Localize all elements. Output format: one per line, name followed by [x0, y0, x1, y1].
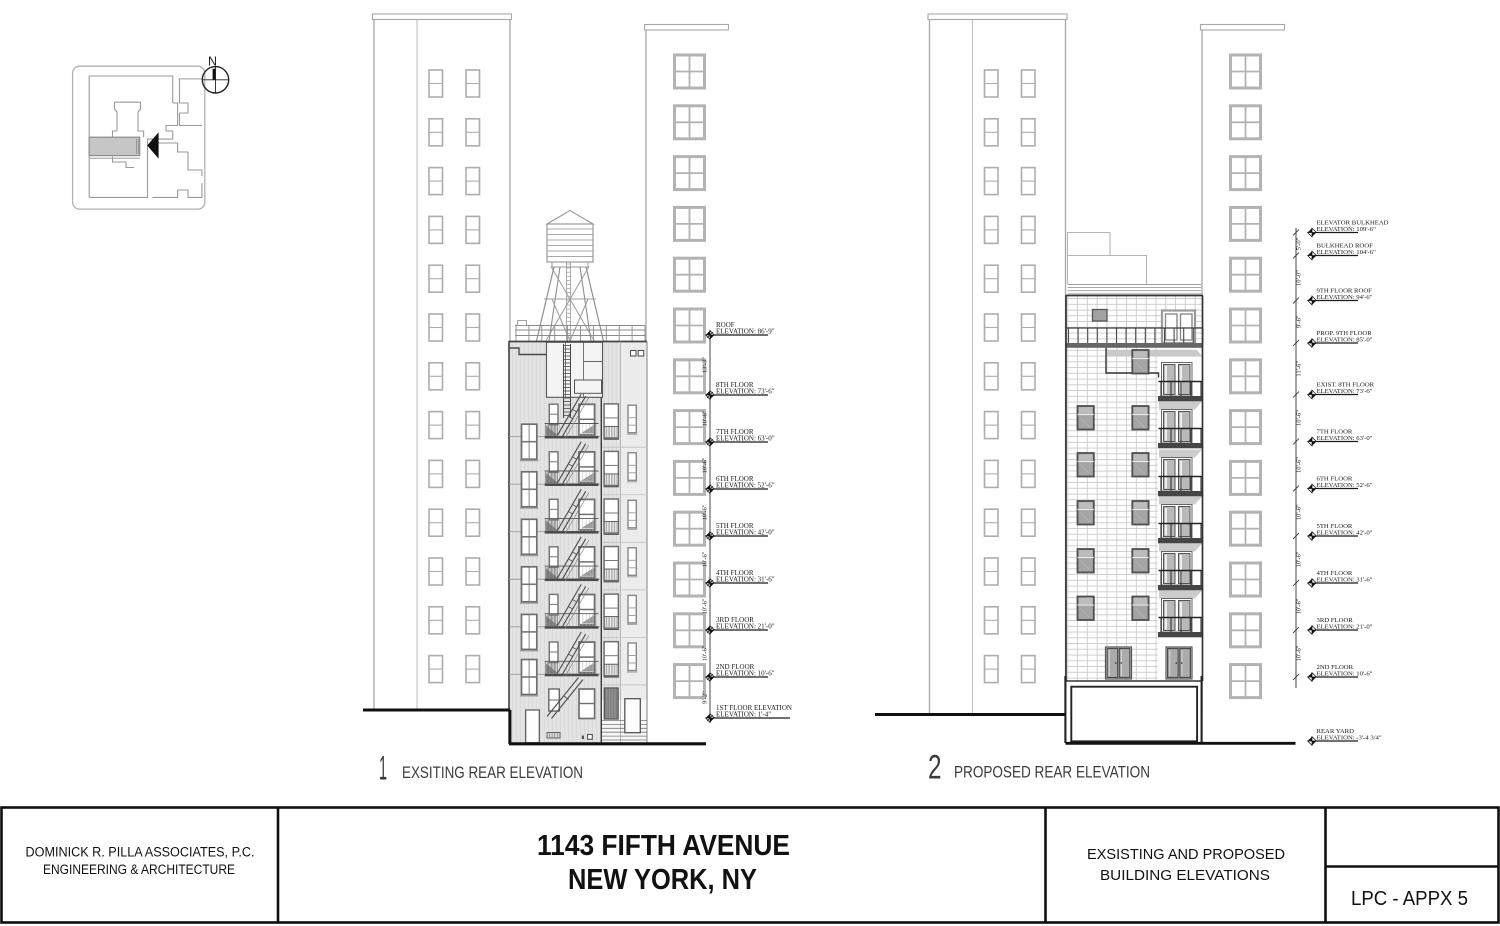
svg-text:10'-6": 10'-6" [702, 645, 709, 661]
svg-text:9'-6": 9'-6" [1296, 315, 1303, 328]
svg-text:NEW YORK, NY: NEW YORK, NY [568, 864, 757, 896]
svg-text:ELEVATION: 52'-6": ELEVATION: 52'-6" [716, 481, 775, 489]
svg-text:ELEVATION: 42'-0": ELEVATION: 42'-0" [716, 528, 775, 536]
svg-text:ELEVATION: -3'-4 3/4": ELEVATION: -3'-4 3/4" [1317, 734, 1382, 741]
svg-text:10'-0": 10'-0" [1296, 270, 1303, 286]
svg-text:13'-3": 13'-3" [702, 357, 709, 373]
svg-text:10'-6": 10'-6" [1296, 551, 1303, 567]
svg-text:ELEVATION: 42'-0": ELEVATION: 42'-0" [1317, 529, 1373, 536]
svg-text:10'-6": 10'-6" [702, 598, 709, 614]
svg-text:11'-6": 11'-6" [1296, 361, 1303, 377]
svg-text:ELEVATION: 63'-0": ELEVATION: 63'-0" [1317, 435, 1373, 442]
svg-text:ELEVATION: 21'-0": ELEVATION: 21'-0" [1317, 623, 1373, 630]
svg-text:ELEVATION: 86'-9": ELEVATION: 86'-9" [716, 327, 775, 335]
svg-text:10'-6": 10'-6" [1296, 598, 1303, 614]
svg-text:ENGINEERING & ARCHITECTURE: ENGINEERING & ARCHITECTURE [43, 862, 235, 877]
svg-text:EXSITING REAR ELEVATION: EXSITING REAR ELEVATION [402, 764, 583, 782]
svg-text:2: 2 [928, 749, 942, 787]
svg-text:ELEVATION: 31'-6": ELEVATION: 31'-6" [1317, 576, 1373, 583]
svg-text:ELEVATION: 21'-0": ELEVATION: 21'-0" [716, 622, 775, 630]
svg-text:5'-0": 5'-0" [1296, 237, 1303, 250]
svg-text:ELEVATION: 109'-6": ELEVATION: 109'-6" [1317, 226, 1377, 233]
svg-text:10'-6": 10'-6" [1296, 645, 1303, 661]
svg-text:1: 1 [379, 750, 387, 788]
svg-text:10'-6": 10'-6" [1296, 410, 1303, 426]
svg-text:ELEVATION: 104'-6": ELEVATION: 104'-6" [1317, 249, 1377, 256]
svg-text:N: N [208, 55, 217, 69]
svg-text:ELEVATION: 52'-6": ELEVATION: 52'-6" [1317, 482, 1373, 489]
svg-text:9'-2": 9'-2" [702, 691, 709, 704]
svg-text:LPC - APPX 5: LPC - APPX 5 [1351, 887, 1468, 910]
svg-text:ELEVATION: 31'-6": ELEVATION: 31'-6" [716, 575, 775, 583]
svg-text:ELEVATION: 1'-4": ELEVATION: 1'-4" [716, 710, 771, 718]
svg-text:10'-6": 10'-6" [702, 457, 709, 473]
svg-text:DOMINICK R. PILLA ASSOCIATES,: DOMINICK R. PILLA ASSOCIATES, P.C. [26, 845, 255, 860]
svg-text:ELEVATION: 94'-6": ELEVATION: 94'-6" [1317, 294, 1373, 301]
svg-text:ELEVATION: 73'-6": ELEVATION: 73'-6" [1317, 388, 1373, 395]
svg-text:ELEVATION: 85'-0": ELEVATION: 85'-0" [1317, 336, 1373, 343]
svg-text:10'-6": 10'-6" [702, 410, 709, 426]
svg-text:10'-6": 10'-6" [702, 504, 709, 520]
svg-text:BUILDING ELEVATIONS: BUILDING ELEVATIONS [1100, 867, 1270, 884]
svg-text:ELEVATION: 63'-0": ELEVATION: 63'-0" [716, 434, 775, 442]
svg-text:EXSISTING AND PROPOSED: EXSISTING AND PROPOSED [1087, 846, 1285, 863]
svg-text:10'-6": 10'-6" [1296, 457, 1303, 473]
svg-text:1143 FIFTH AVENUE: 1143 FIFTH AVENUE [537, 830, 790, 862]
svg-text:10'-6": 10'-6" [1296, 504, 1303, 520]
svg-text:PROPOSED REAR ELEVATION: PROPOSED REAR ELEVATION [954, 764, 1150, 782]
svg-text:10'-6": 10'-6" [702, 551, 709, 567]
svg-text:ELEVATION: 73'-6": ELEVATION: 73'-6" [716, 387, 775, 395]
svg-text:ELEVATION: 10'-6": ELEVATION: 10'-6" [1317, 670, 1373, 677]
svg-text:ELEVATION: 10'-6": ELEVATION: 10'-6" [716, 669, 775, 677]
